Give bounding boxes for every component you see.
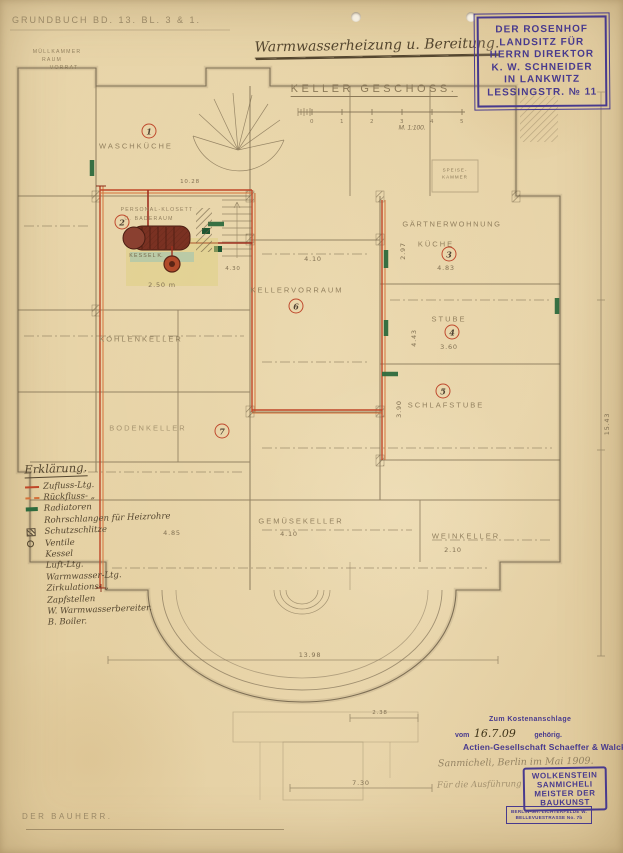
room-label-gemuesekeller: Gemüsekeller <box>258 517 343 526</box>
dim-kueche: 4.83 <box>437 264 455 272</box>
boiler-end-cap <box>123 227 145 249</box>
scale-tick-label: 1 <box>340 119 344 125</box>
dim-gemuesekeller: 4.10 <box>280 530 298 538</box>
dim-porch-width: 2.38 <box>372 710 387 716</box>
dim-kellervorraum-2: 4.30 <box>225 266 240 272</box>
room-label-klosett-2: u. Baderaum <box>124 216 173 222</box>
dim-stube-v: 4.43 <box>410 329 418 347</box>
room-number-7: 7 <box>215 424 230 439</box>
owner-stamp-line: IN LANKWITZ <box>487 74 597 87</box>
dim-stube: 3.60 <box>440 343 458 351</box>
company-stamp: Actien-Gesellschaft Schaeffer & Walcker <box>463 742 623 752</box>
owner-stamp-line: DER ROSENHOF <box>487 24 597 37</box>
return-line-swatch <box>25 497 39 499</box>
room-label-kessel: Kessel <box>129 253 156 259</box>
address-stamp: BERLIN-GR. LICHTERFELDE W. BELLEVUESTRAS… <box>506 806 592 824</box>
winding-stair <box>193 93 284 171</box>
room-number-2: 2 <box>115 215 130 230</box>
bauherr-signature-line <box>26 829 284 830</box>
dim-weinkeller: 2.10 <box>444 546 462 554</box>
dim-top: 10.28 <box>180 179 200 185</box>
grundbuch-note: Grundbuch Bd. 13. Bl. 3 & 1. <box>12 15 201 25</box>
dim-right-height: 15.43 <box>603 413 611 436</box>
room-label-muellkammer2: Raum <box>42 57 62 63</box>
address-stamp-line: BELLEVUESTRASSE No. 7b <box>511 815 587 821</box>
kosten-date: 16.7.09 <box>474 727 516 740</box>
legend-item: Rückfluss- „ <box>43 491 95 503</box>
legend: Erklärung. Zufluss-Ltg. Rückfluss- „ Rad… <box>24 456 170 630</box>
dim-kessel: 2.50 m <box>148 281 176 289</box>
owner-stamp: DER ROSENHOF LANDSITZ FÜR HERRN DIREKTOR… <box>477 15 608 107</box>
scale-tick-label: 2 <box>370 119 374 125</box>
scale-tick-label: 5 <box>460 119 464 125</box>
scale-label: M. 1:100. <box>398 125 425 132</box>
room-label-kellervorraum: Kellervorraum <box>251 286 344 295</box>
kosten-note-line2: vom 16.7.09 gehörig. <box>455 724 562 742</box>
legend-item: Ventile <box>45 537 75 548</box>
plan-heading: Keller Geschoss. <box>291 83 458 97</box>
legend-item: Kessel <box>45 549 73 560</box>
bauherr-label: Der Bauherr. <box>22 812 112 821</box>
scanned-blueprint-page: 0 1 2 3 4 5 Grundbuch Bd. 13. Bl. 3 & 1.… <box>0 0 623 853</box>
owner-stamp-line: HERRN DIREKTOR <box>487 49 597 62</box>
supply-line-swatch <box>25 486 39 488</box>
dim-schlafstube-v: 3.90 <box>395 400 403 418</box>
room-label-speisekammer-1: Speise- <box>443 168 468 173</box>
schlitz-swatch <box>26 528 40 536</box>
room-label-waschkueche: Waschküche <box>99 142 173 151</box>
legend-item: Zapfstellen <box>47 594 96 606</box>
legend-item: Zufluss-Ltg. <box>43 480 95 492</box>
legend-item: B. Boiler. <box>48 617 88 628</box>
kosten-vom: vom <box>455 732 469 739</box>
pencil-note-2: Für die Ausführung <box>437 779 522 790</box>
scale-bar: 0 1 2 3 4 5 <box>298 108 465 125</box>
scale-tick-label: 4 <box>430 119 434 125</box>
legend-item: Luft-Ltg. <box>46 560 84 571</box>
owner-stamp-line: K. W. SCHNEIDER <box>487 61 597 74</box>
owner-stamp-line: LANDSITZ FÜR <box>487 36 597 49</box>
room-number-5: 5 <box>436 384 451 399</box>
room-label-weinkeller: Weinkeller <box>432 532 500 541</box>
dim-kellervorraum: 4.10 <box>304 255 322 263</box>
legend-heading: Erklärung. <box>24 460 87 478</box>
room-label-vorrat: Vorrat <box>50 65 78 71</box>
room-label-klosett-1: Personal-Klosett <box>121 207 194 213</box>
room-label-stube: Stube <box>431 315 466 324</box>
room-number-1: 1 <box>142 124 157 139</box>
builder-stamp: WOLKENSTEIN SANMICHELI MEISTER DER BAUKU… <box>523 766 607 811</box>
dim-lower-width: 7.30 <box>352 779 370 787</box>
ventil-swatch <box>27 540 41 547</box>
room-label-bodenkeller: Bodenkeller <box>109 424 186 433</box>
scale-tick-label: 0 <box>310 119 314 125</box>
room-label-muellkammer: Müllkammer <box>33 49 82 55</box>
pump-label: K. <box>157 253 162 259</box>
owner-stamp-line: LESSINGSTR. № 11 <box>487 86 597 99</box>
straight-stair <box>222 200 252 258</box>
legend-item: Radiatoren <box>44 503 92 515</box>
chimney-hatch <box>196 208 212 252</box>
room-label-gaertnerwohnung: Gärtnerwohnung <box>402 220 501 229</box>
kosten-gehoerig: gehörig. <box>534 732 562 739</box>
dim-bottom-width: 13.98 <box>299 651 322 659</box>
room-label-schlafstube: Schlafstube <box>408 401 485 410</box>
room-label-kohlenkeller: Kohlenkeller <box>99 335 183 344</box>
radiator-swatch <box>26 507 40 511</box>
kosten-note-line1: Zum Kostenanschlage <box>489 716 571 723</box>
dim-kueche-v: 2.97 <box>399 242 407 260</box>
room-number-3: 3 <box>442 247 457 262</box>
entrance-steps <box>274 590 330 614</box>
room-number-4: 4 <box>445 325 460 340</box>
room-label-speisekammer-2: Kammer <box>442 175 468 180</box>
room-number-6: 6 <box>289 299 304 314</box>
